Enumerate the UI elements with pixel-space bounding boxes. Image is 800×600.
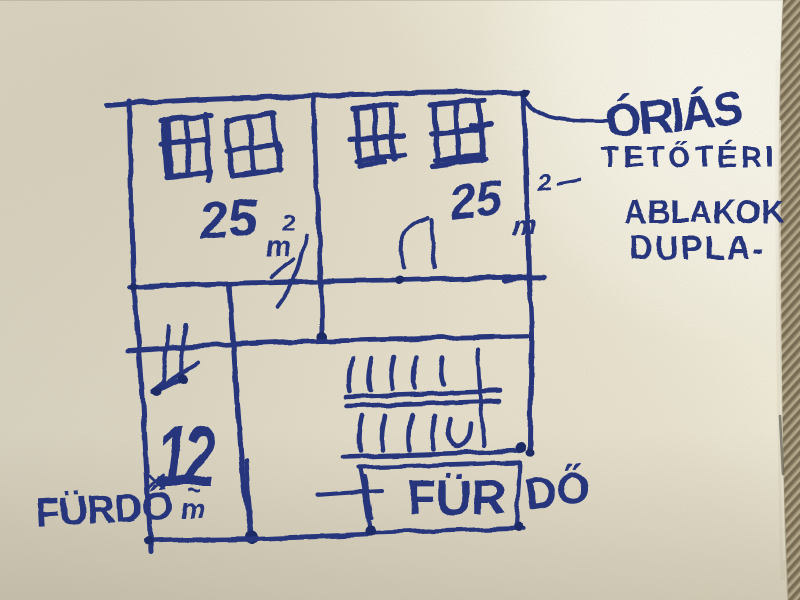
svg-text:FÜRDŐ: FÜRDŐ: [34, 482, 173, 535]
svg-text:DŐ: DŐ: [521, 461, 593, 520]
svg-text:~: ~: [186, 478, 200, 505]
svg-text:25: 25: [445, 170, 505, 229]
svg-text:TETŐTÉRI: TETŐTÉRI: [601, 140, 777, 174]
svg-text:FÜR: FÜR: [407, 472, 506, 525]
svg-text:DUPLA-: DUPLA-: [629, 229, 766, 266]
svg-text:2: 2: [282, 210, 297, 237]
svg-text:m: m: [512, 210, 537, 241]
svg-text:25: 25: [196, 189, 261, 252]
svg-text:ABLAKOK: ABLAKOK: [624, 194, 784, 230]
